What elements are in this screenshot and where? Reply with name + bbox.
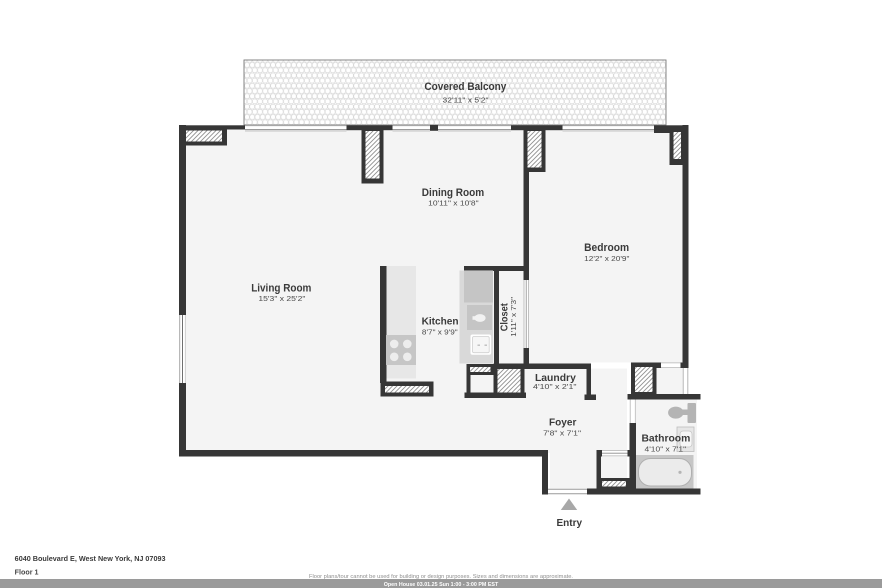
svg-text:Bathroom: Bathroom (641, 433, 690, 445)
svg-text:4'10" x 2'1": 4'10" x 2'1" (533, 382, 577, 391)
svg-text:Living Room: Living Room (251, 282, 311, 294)
svg-text:12'2" x 20'9": 12'2" x 20'9" (584, 254, 630, 263)
svg-text:Floor 1: Floor 1 (15, 570, 39, 577)
svg-text:Entry: Entry (557, 517, 583, 529)
svg-text:Kitchen: Kitchen (422, 315, 459, 327)
svg-text:Open House 03.01.25 Sun 1:00 -: Open House 03.01.25 Sun 1:00 - 3:00 PM E… (384, 582, 499, 588)
svg-text:Bedroom: Bedroom (584, 242, 629, 254)
svg-text:Covered Balcony: Covered Balcony (424, 81, 507, 93)
svg-text:Dining Room: Dining Room (422, 187, 485, 199)
svg-text:32'11" x 5'2": 32'11" x 5'2" (443, 95, 489, 104)
svg-text:1'11" x 7'3": 1'11" x 7'3" (509, 297, 518, 337)
svg-text:7'8" x 7'1": 7'8" x 7'1" (543, 429, 581, 438)
svg-text:Foyer: Foyer (549, 417, 576, 429)
svg-text:15'3" x 25'2": 15'3" x 25'2" (258, 294, 305, 303)
svg-text:8'7" x 9'9": 8'7" x 9'9" (422, 328, 458, 337)
svg-text:4'10" x 7'1": 4'10" x 7'1" (645, 444, 687, 453)
svg-text:6040 Boulevard E, West New Yor: 6040 Boulevard E, West New York, NJ 0709… (15, 556, 166, 563)
svg-text:10'11" x 10'8": 10'11" x 10'8" (428, 199, 479, 208)
